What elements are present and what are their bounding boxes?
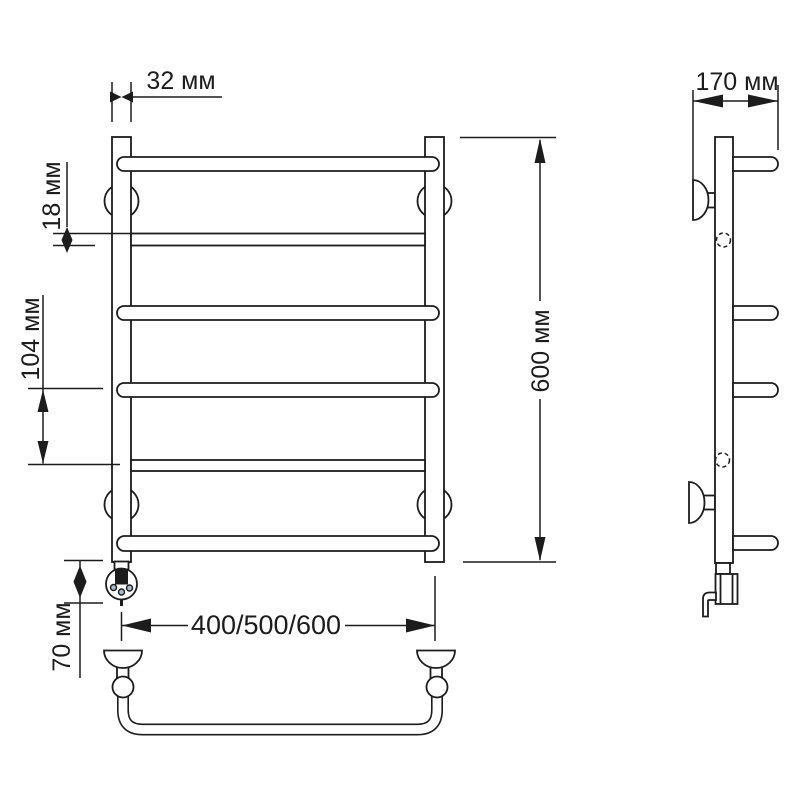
dim-height-600mm: 600 мм [460, 138, 556, 563]
side-rung-1 [733, 157, 778, 171]
dim-rung-spacing-104mm: 104 мм [17, 295, 120, 465]
bottom-rail-detail [104, 651, 455, 730]
u-tube-fill [123, 684, 437, 730]
wall-bracket-dome [693, 180, 708, 220]
left-post [112, 137, 131, 562]
dim-depth-label: 170 мм [695, 68, 778, 96]
front-view [105, 137, 452, 606]
dim-width-options-label: 400/500/600 [191, 610, 341, 640]
rung-6-capsule [117, 536, 439, 551]
heater-button [111, 585, 117, 591]
side-view [689, 137, 778, 617]
heating-element-front [106, 562, 137, 607]
dim-height-label: 600 мм [527, 309, 555, 392]
u-tube-outline [123, 684, 437, 730]
arrowhead-right [748, 95, 778, 108]
dim-heater-height-70mm: 70 мм [48, 561, 103, 679]
heater-housing-side [716, 574, 738, 604]
side-post [715, 137, 733, 563]
heating-element-side [703, 563, 738, 617]
dim-tube-diameter-label: 18 мм [38, 161, 66, 230]
arrowhead-diamond [74, 566, 87, 599]
side-rung-4 [733, 383, 778, 397]
arrowhead [110, 92, 122, 103]
wall-bracket-dome-front [417, 651, 455, 669]
arrowhead-up [38, 390, 49, 413]
arrowhead-left [122, 619, 151, 633]
towel-rail-dimension-drawing: 32 мм 18 мм 104 мм 70 мм 600 мм 170 мм [0, 0, 800, 800]
side-rung-6 [733, 536, 778, 550]
heater-display [115, 570, 128, 585]
rung-5-straight [131, 460, 425, 471]
dim-rung-spacing-label: 104 мм [17, 297, 45, 380]
dim-width-options: 400/500/600 [122, 576, 436, 641]
dim-post-width-32mm: 32 мм [110, 67, 222, 122]
wall-bracket-dome-front [104, 651, 142, 669]
rung-4-capsule [117, 383, 439, 397]
bracket-ball [427, 677, 448, 698]
dim-heater-height-label: 70 мм [48, 602, 76, 671]
heater-button [127, 585, 133, 591]
heater-button [119, 589, 125, 595]
right-post [425, 137, 444, 562]
arrowhead-left [693, 95, 723, 108]
heater-pin [120, 600, 123, 607]
arrowhead-down [535, 537, 546, 561]
arrowhead-down [38, 441, 49, 464]
bracket-ball [113, 677, 134, 698]
rung-1-capsule [117, 157, 439, 171]
arrowhead-right [406, 619, 435, 633]
arrowhead-up [535, 139, 546, 164]
side-rung-3 [733, 306, 778, 320]
rung-3-capsule [117, 306, 439, 320]
heater-connector-side [716, 563, 730, 574]
rung-2-straight [131, 234, 425, 246]
wall-bracket-dome [689, 482, 704, 523]
dim-post-width-label: 32 мм [146, 67, 215, 95]
power-cable [703, 593, 716, 617]
